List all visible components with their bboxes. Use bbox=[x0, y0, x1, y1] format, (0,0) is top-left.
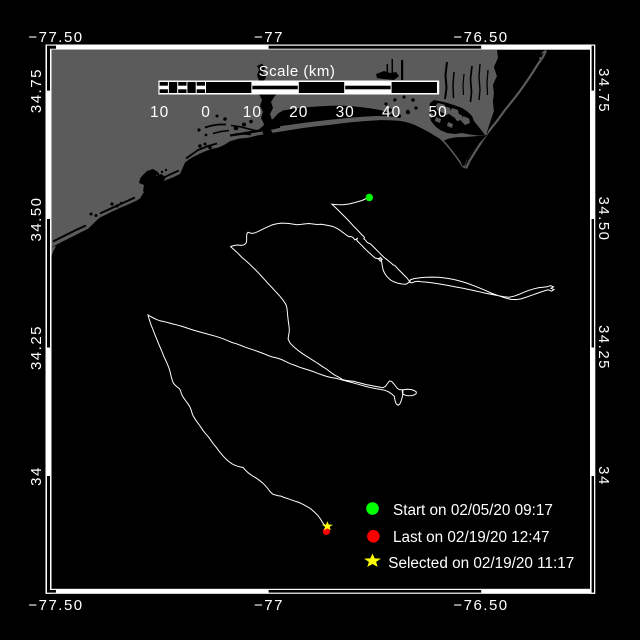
svg-text:34.50: 34.50 bbox=[28, 196, 45, 241]
svg-text:34.50: 34.50 bbox=[595, 196, 612, 241]
svg-text:Scale (km): Scale (km) bbox=[259, 63, 336, 80]
svg-text:34.75: 34.75 bbox=[28, 68, 45, 113]
svg-text:34: 34 bbox=[28, 466, 45, 486]
svg-text:0: 0 bbox=[201, 104, 211, 121]
svg-text:40: 40 bbox=[382, 104, 401, 121]
svg-text:34: 34 bbox=[595, 466, 612, 486]
svg-text:−76.50: −76.50 bbox=[453, 29, 508, 46]
svg-text:Start on 02/05/20 09:17: Start on 02/05/20 09:17 bbox=[393, 502, 553, 519]
svg-text:30: 30 bbox=[336, 104, 355, 121]
svg-text:−77: −77 bbox=[254, 29, 284, 46]
svg-text:34.25: 34.25 bbox=[595, 325, 612, 370]
svg-text:−76.50: −76.50 bbox=[453, 597, 508, 614]
svg-text:−77.50: −77.50 bbox=[28, 29, 83, 46]
svg-text:10: 10 bbox=[243, 104, 262, 121]
svg-text:34.25: 34.25 bbox=[28, 325, 45, 370]
svg-text:20: 20 bbox=[289, 104, 308, 121]
svg-text:−77.50: −77.50 bbox=[28, 597, 83, 614]
svg-text:10: 10 bbox=[150, 104, 169, 121]
svg-text:Last on 02/19/20 12:47: Last on 02/19/20 12:47 bbox=[393, 529, 550, 546]
svg-text:34.75: 34.75 bbox=[595, 68, 612, 113]
svg-text:50: 50 bbox=[428, 104, 447, 121]
svg-text:Selected on 02/19/20 11:17: Selected on 02/19/20 11:17 bbox=[388, 555, 574, 572]
svg-text:−77: −77 bbox=[254, 597, 284, 614]
